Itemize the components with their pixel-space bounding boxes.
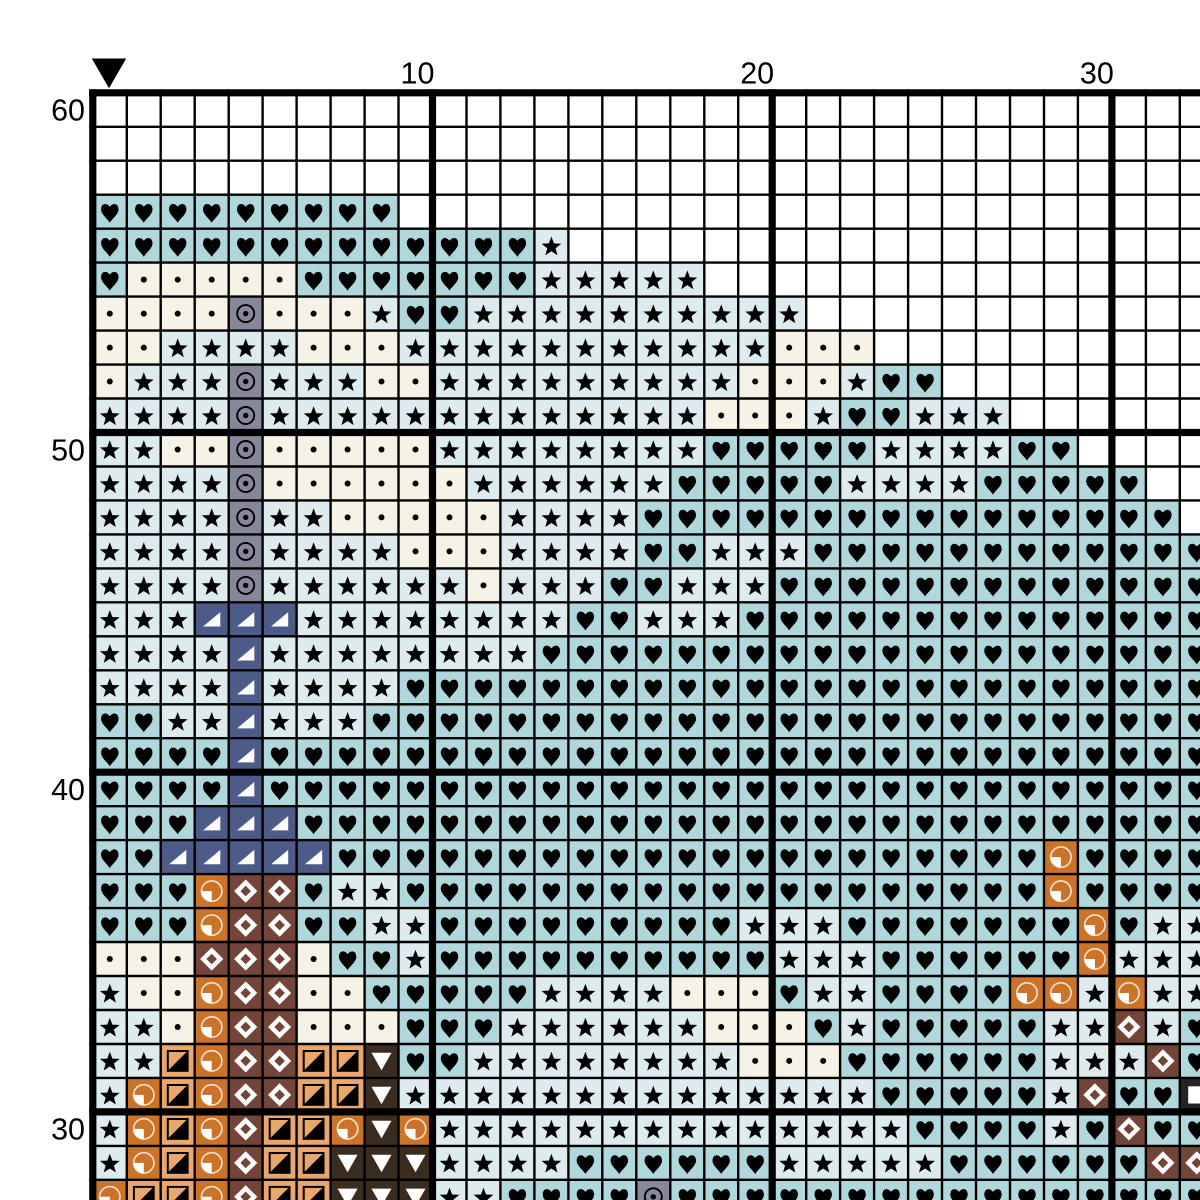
svg-text:30: 30 bbox=[1080, 57, 1114, 91]
svg-text:20: 20 bbox=[740, 57, 774, 91]
svg-text:50: 50 bbox=[51, 433, 85, 467]
svg-text:10: 10 bbox=[401, 57, 435, 91]
svg-text:40: 40 bbox=[51, 773, 85, 807]
svg-text:60: 60 bbox=[51, 94, 85, 128]
svg-text:30: 30 bbox=[51, 1113, 85, 1147]
